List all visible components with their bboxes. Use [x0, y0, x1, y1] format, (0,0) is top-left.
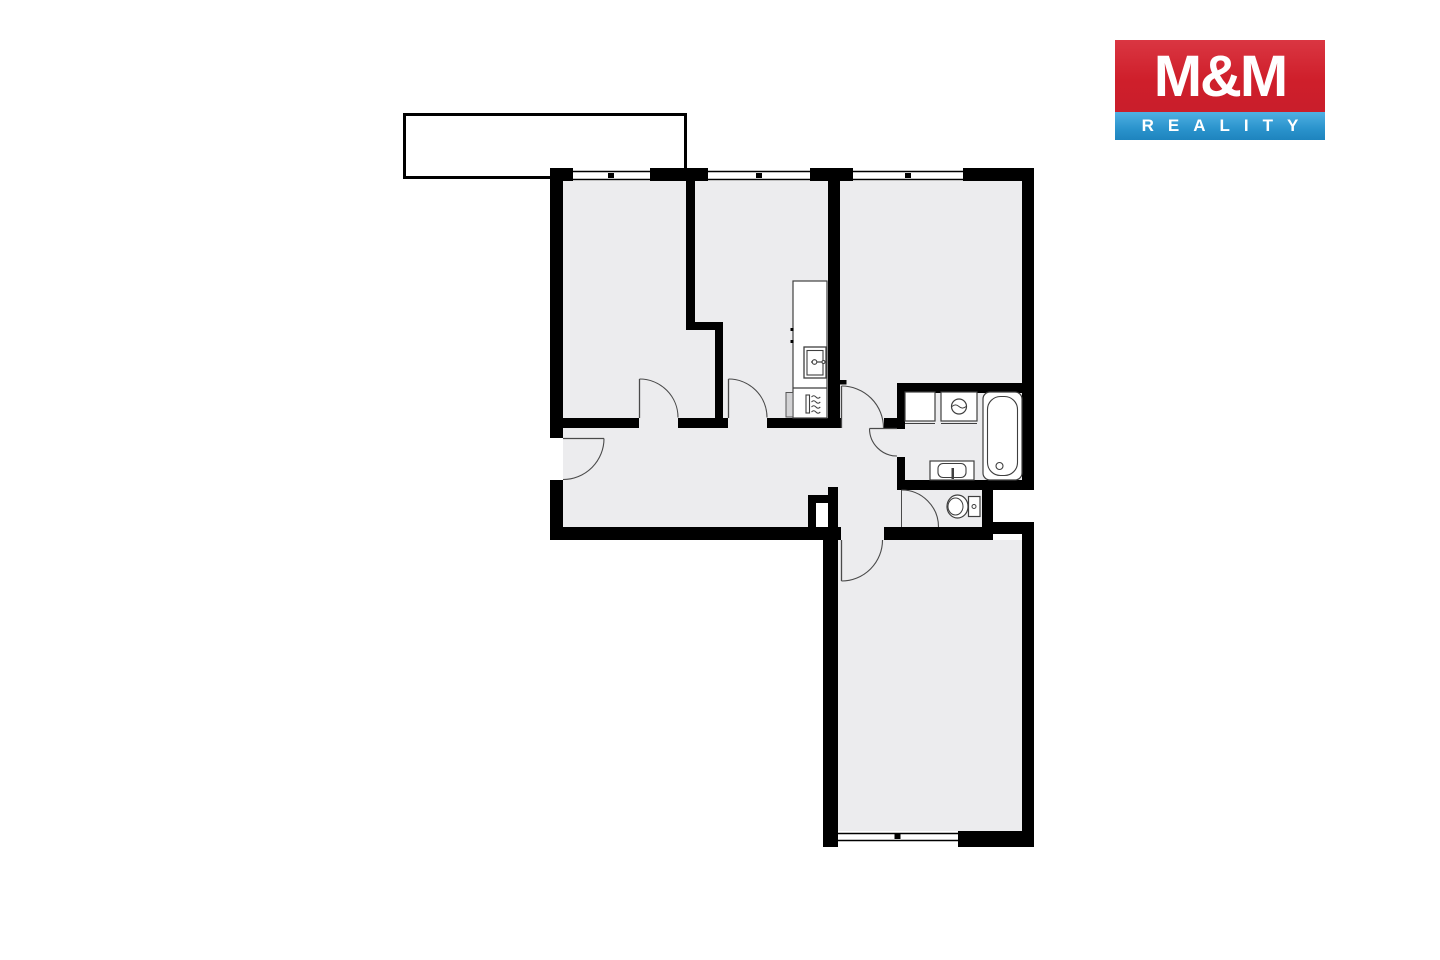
- logo-title: M&M: [1154, 43, 1287, 110]
- floor-plan-page: M&M REALITY: [0, 0, 1440, 960]
- door-living-hinge-tick: [838, 380, 847, 385]
- vanity-faucet: [952, 468, 955, 479]
- wall-divider-a-jog: [686, 322, 723, 330]
- wall-bottom-hall: [550, 527, 993, 540]
- wall-right-nub: [993, 522, 1022, 534]
- logo-red-box: M&M: [1115, 40, 1325, 112]
- kitchen-faucet-knob: [812, 360, 817, 365]
- facade-notch: [993, 490, 1034, 522]
- opening-living-door: [841, 418, 884, 428]
- opening-entrance: [550, 438, 563, 480]
- kitchen-faucet-spout: [822, 361, 825, 364]
- window-bedroom2-tick: [895, 834, 901, 839]
- floorplan-svg: [0, 0, 1440, 960]
- opening-room1-door: [639, 418, 678, 428]
- floor-bedroom2: [838, 540, 1022, 831]
- logo-subtitle: REALITY: [1142, 116, 1313, 136]
- wall-shaft-top: [808, 495, 828, 503]
- wall-bedroom2-left: [823, 540, 838, 831]
- opening-bedroom2-door: [841, 527, 884, 540]
- wall-right-upper: [1022, 168, 1034, 490]
- wall-wc-right: [982, 490, 993, 527]
- wall-bath-left-a: [897, 383, 905, 429]
- toilet-tank: [969, 497, 981, 517]
- logo-blue-box: REALITY: [1115, 112, 1325, 140]
- wall-hall-stub: [828, 487, 838, 527]
- window-living-tick: [905, 173, 911, 178]
- wall-divider-a-upper: [686, 181, 695, 330]
- wall-left: [550, 168, 563, 540]
- bath-cabinet: [905, 392, 935, 421]
- window-kitchen-tick: [756, 173, 762, 178]
- wall-bedroom2-right: [1022, 522, 1034, 847]
- kitchen-counter-tick-2: [791, 340, 794, 343]
- shaft-void: [816, 503, 828, 527]
- wall-divider-a-lower: [715, 330, 723, 418]
- wall-bath-bottom: [897, 480, 1022, 490]
- kitchen-counter-tick-1: [791, 328, 794, 331]
- opening-kitchen-door: [728, 418, 767, 428]
- kitchen-radiator: [786, 393, 793, 418]
- window-room1-tick: [608, 173, 614, 178]
- wall-shaft-left: [808, 503, 816, 527]
- mm-reality-logo: M&M REALITY: [1115, 40, 1325, 140]
